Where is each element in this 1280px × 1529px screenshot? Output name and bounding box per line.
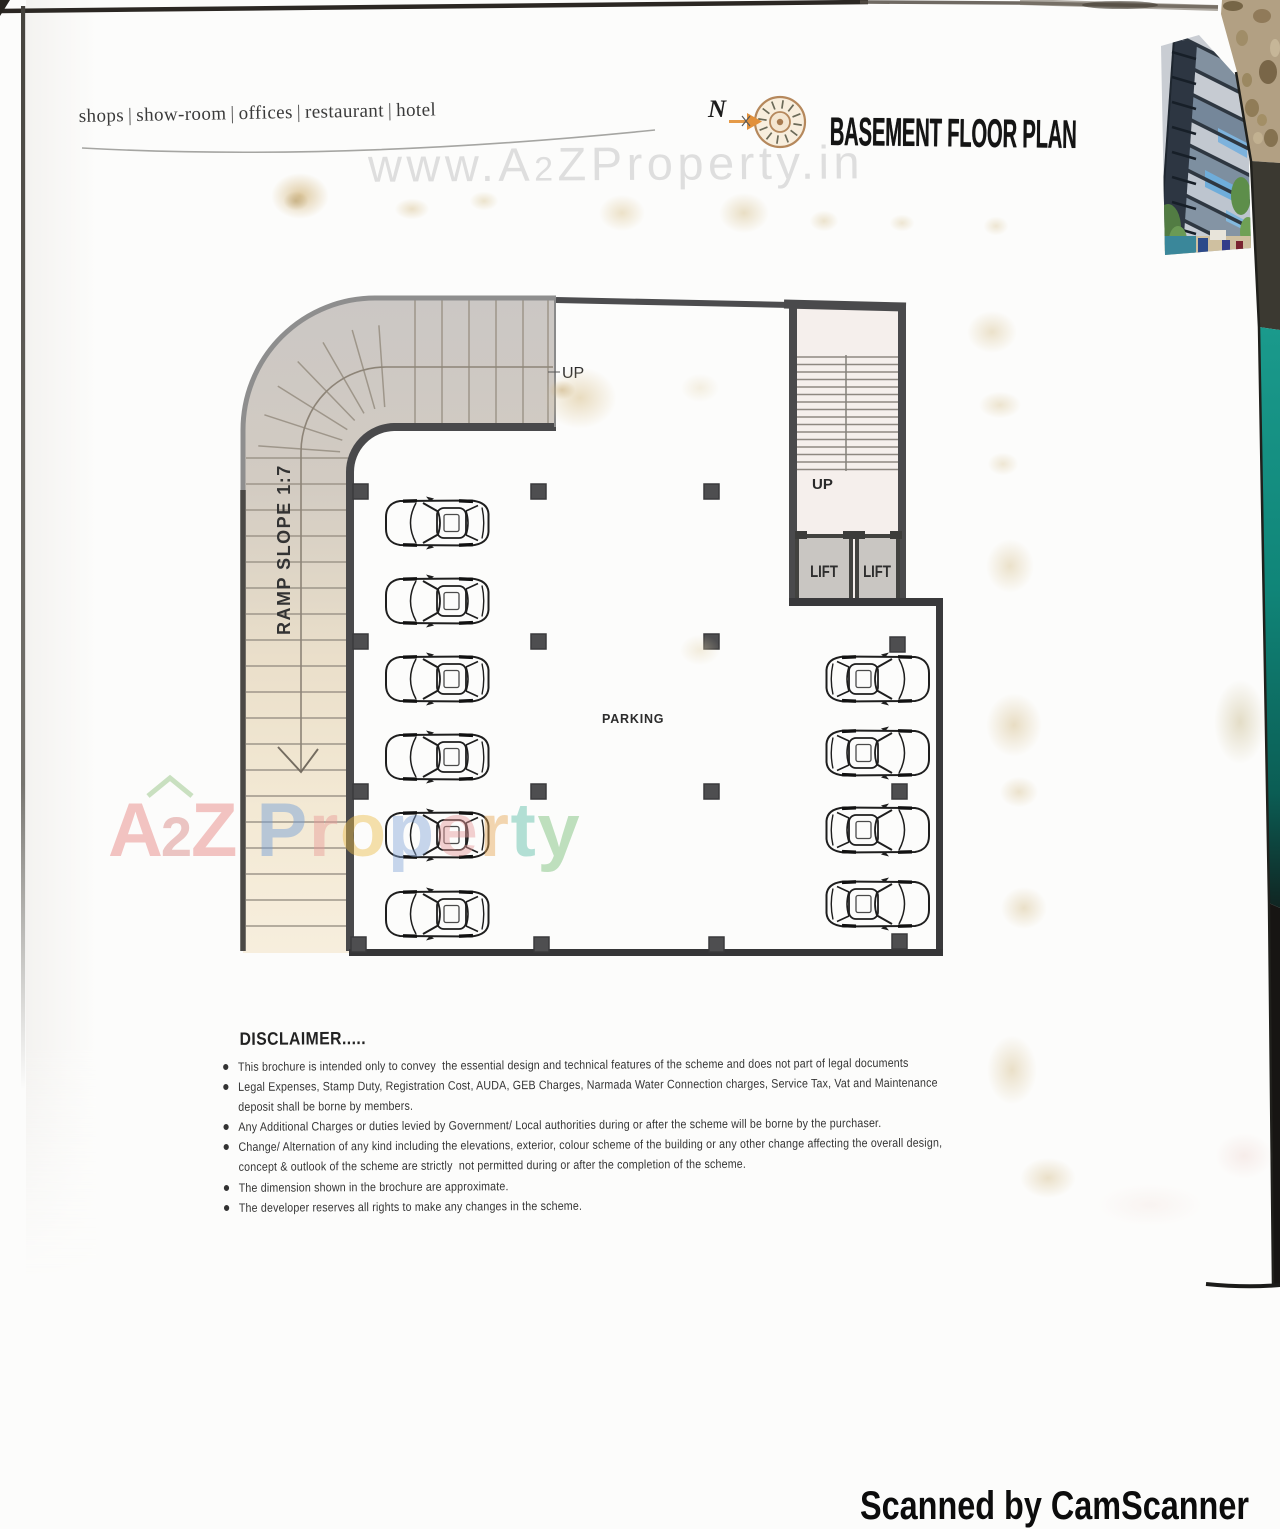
svg-text:LIFT: LIFT (810, 563, 838, 582)
svg-text:LIFT: LIFT (863, 563, 891, 582)
svg-text:N: N (707, 96, 727, 123)
svg-text:RAMP SLOPE 1:7: RAMP SLOPE 1:7 (274, 464, 294, 635)
svg-text:PARKING: PARKING (602, 712, 664, 726)
svg-text:UP: UP (812, 476, 833, 493)
